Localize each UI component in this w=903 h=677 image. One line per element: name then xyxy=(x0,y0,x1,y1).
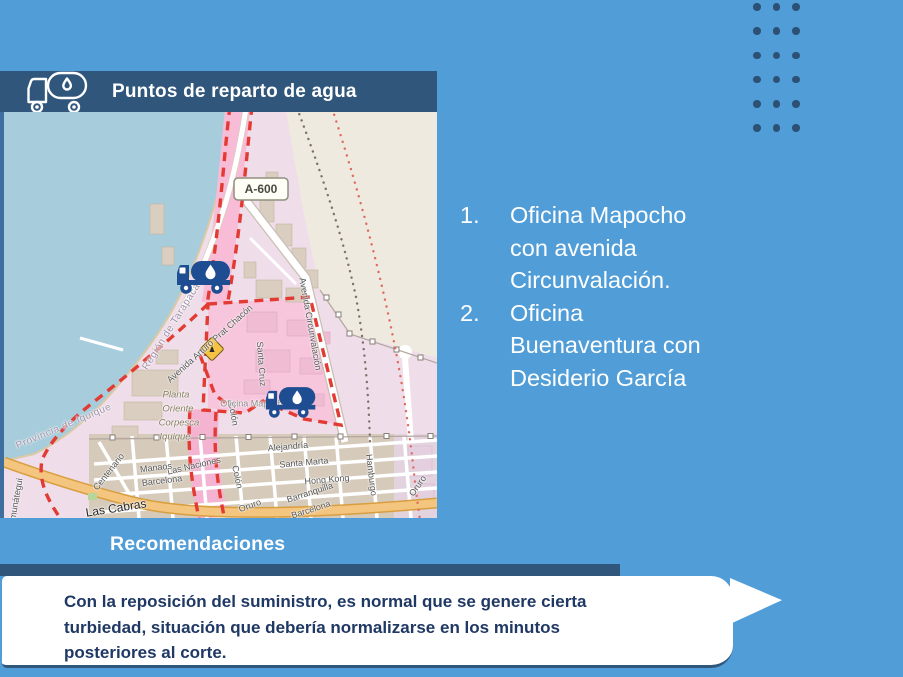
map-header: Puntos de reparto de agua xyxy=(0,71,437,112)
decor-dot xyxy=(773,124,781,132)
page-title: Puntos de reparto de agua xyxy=(112,81,357,103)
accent-bar xyxy=(0,564,620,576)
decor-dot xyxy=(773,76,781,84)
slide: Puntos de reparto de agua xyxy=(0,0,903,677)
water-truck-marker-south xyxy=(265,386,319,420)
decor-dot xyxy=(792,3,800,11)
decor-dot xyxy=(753,27,761,35)
decor-dot xyxy=(792,124,800,132)
list-item: Oficina Mapocho con avenida Circunvalaci… xyxy=(458,199,720,297)
list-item: Oficina Buenaventura con Desiderio Garcí… xyxy=(458,297,720,395)
decor-dot xyxy=(773,3,781,11)
decor-dot xyxy=(753,3,761,11)
decor-dot xyxy=(773,52,781,60)
list-item-text: Oficina Mapocho con avenida Circunvalaci… xyxy=(510,202,686,293)
bubble-tail xyxy=(730,578,782,624)
decor-dot xyxy=(773,100,781,108)
list-item-text: Oficina Buenaventura con Desiderio Garcí… xyxy=(510,300,701,391)
decor-dot xyxy=(753,76,761,84)
road-shield: A-600 xyxy=(234,178,288,200)
recommendations-title: Recomendaciones xyxy=(110,533,285,556)
decor-dot xyxy=(792,52,800,60)
map-park xyxy=(88,493,97,500)
decor-dot xyxy=(792,100,800,108)
water-tank-truck-icon xyxy=(24,69,90,115)
recommendations-bubble: Con la reposición del suministro, es nor… xyxy=(2,576,733,668)
decor-dot xyxy=(753,100,761,108)
distribution-points-list: Oficina Mapocho con avenida Circunvalaci… xyxy=(458,199,720,394)
svg-text:A-600: A-600 xyxy=(245,182,278,196)
decor-dot xyxy=(792,76,800,84)
decor-dot xyxy=(792,27,800,35)
decor-dot xyxy=(773,27,781,35)
decor-dot xyxy=(753,52,761,60)
decor-dots xyxy=(753,3,812,149)
decor-dot xyxy=(753,124,761,132)
map-graphic: A-600 xyxy=(4,112,437,518)
recommendations-body: Con la reposición del suministro, es nor… xyxy=(2,576,639,666)
water-truck-marker-north xyxy=(176,260,234,296)
map-iquique: A-600 Región de TarapacáProvincia de Iqu… xyxy=(4,112,437,518)
